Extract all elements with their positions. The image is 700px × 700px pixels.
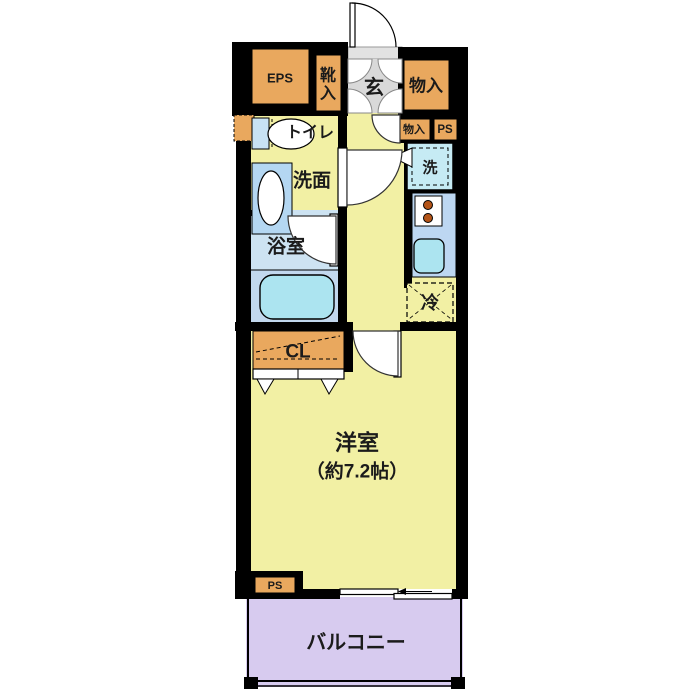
washroom-label: 洗面 xyxy=(293,169,331,192)
closet-label: CL xyxy=(285,342,311,363)
entrance-step xyxy=(348,47,402,59)
ps-lower-label: PS xyxy=(268,580,283,592)
balcony-label: バルコニー xyxy=(306,631,406,654)
wall-room-north-right xyxy=(400,322,468,331)
sliding-window-pane-2 xyxy=(394,594,452,600)
western-room-size: （約7.2帖） xyxy=(306,460,408,483)
washroom-door-panel xyxy=(338,148,347,207)
wall-closet-side xyxy=(344,322,353,372)
railing-post-right xyxy=(451,677,465,689)
laundry-label: 洗 xyxy=(422,159,437,177)
entrance-door-arc xyxy=(352,3,396,47)
room-doorway xyxy=(353,322,400,331)
ps-upper-label: PS xyxy=(437,124,453,136)
wall-room-south-left xyxy=(303,589,340,599)
toilet-label: トイレ xyxy=(286,125,334,142)
floorplan-canvas: EPS 靴 入 玄 物入 物入 PS 洗 トイレ 洗面 浴室 CL 冷 洋室 （… xyxy=(0,0,700,700)
pipe-shaft-hatch xyxy=(234,115,254,141)
wall-left-outer xyxy=(236,108,251,599)
shoe-cabinet-label-1: 靴 xyxy=(320,66,336,85)
entrance-door-panel xyxy=(350,3,355,47)
hallway-floor xyxy=(347,113,404,325)
eps-label: EPS xyxy=(267,71,293,86)
railing-post-left xyxy=(244,677,258,689)
western-room-label: 洋室 xyxy=(335,431,379,456)
floorplan-drawing: EPS 靴 入 玄 物入 物入 PS 洗 トイレ 洗面 浴室 CL 冷 洋室 （… xyxy=(0,0,700,700)
toilet-tank xyxy=(252,118,269,149)
wash-basin xyxy=(258,171,284,225)
stove-burner-1 xyxy=(424,201,433,210)
storage-top-label: 物入 xyxy=(409,76,443,96)
wall-washroom-hall-lower xyxy=(338,207,347,322)
bathroom-label: 浴室 xyxy=(267,235,305,258)
stove-burner-2 xyxy=(424,214,433,223)
shoe-cabinet-label-2: 入 xyxy=(320,85,336,103)
wall-right-outer xyxy=(456,143,468,599)
wall-washroom-hall-upper xyxy=(338,110,347,148)
storage-small-label: 物入 xyxy=(403,122,425,136)
wall-room-north-left xyxy=(235,322,353,331)
bathtub xyxy=(260,275,334,319)
kitchen-sink xyxy=(414,239,444,273)
fridge-label: 冷 xyxy=(421,292,439,313)
sliding-window-pane-1 xyxy=(340,589,398,595)
entrance-label: 玄 xyxy=(364,75,384,99)
